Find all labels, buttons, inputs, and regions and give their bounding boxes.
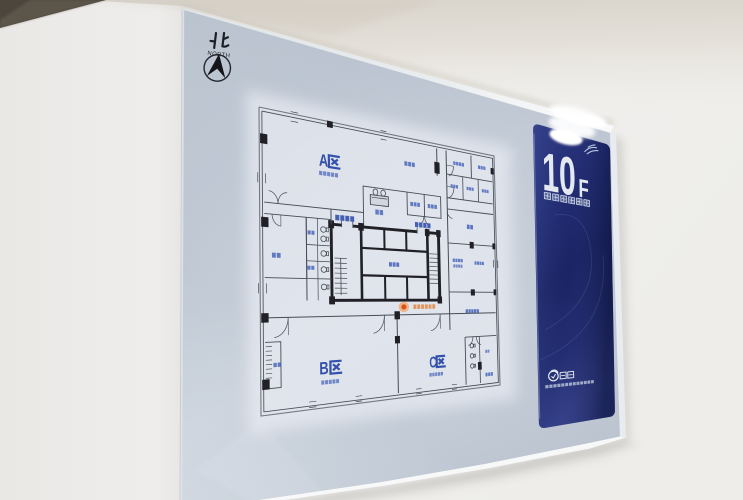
svg-text:A: A — [319, 151, 328, 172]
svg-text:B: B — [319, 359, 329, 379]
